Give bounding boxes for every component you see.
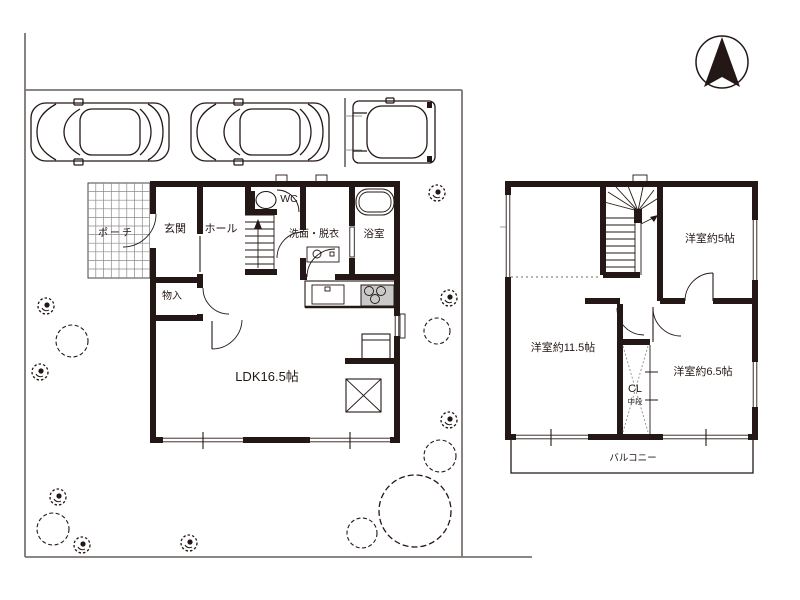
hall-label: ホール: [205, 222, 238, 235]
car-icon-1: [31, 99, 169, 165]
bath-label: 浴室: [364, 227, 385, 240]
car-icon-3: [353, 98, 435, 163]
toilet-icon: [246, 191, 276, 209]
tree-icon: [347, 518, 377, 548]
porch-label: ポーチ: [98, 227, 134, 239]
floor2-plan: [500, 175, 758, 473]
floorplan-drawing: ポーチ 玄関 ホール WC 洗面・脱衣 浴室 物入 LDK16.5帖 洋室約5帖…: [0, 0, 800, 600]
shrub-icon: [50, 489, 66, 505]
storage-label: 物入: [162, 289, 182, 302]
room65-label: 洋室約6.5帖: [673, 364, 732, 378]
entrance-label: 玄関: [164, 221, 186, 235]
shrub-icon: [429, 185, 445, 201]
stove-icon: [361, 285, 394, 306]
shrub-icon: [74, 537, 90, 553]
shrub-icon: [441, 412, 457, 428]
stairs-icon: [245, 212, 274, 272]
ldk-label: LDK16.5帖: [235, 369, 299, 384]
closet-note-label: 中段: [628, 396, 643, 406]
tree-icon: [37, 513, 69, 545]
north-compass-icon: [696, 36, 748, 88]
shrub-icon: [441, 290, 457, 306]
shrub-icon: [32, 364, 48, 380]
floorplan-canvas: ポーチ 玄関 ホール WC 洗面・脱衣 浴室 物入 LDK16.5帖 洋室約5帖…: [0, 0, 800, 600]
closet-label: CL: [628, 383, 642, 395]
wc-label: WC: [280, 193, 298, 205]
sink-icon: [312, 285, 344, 304]
shrub-icon: [38, 298, 54, 314]
tree-icon: [56, 325, 88, 357]
bathtub-icon: [356, 189, 394, 215]
car-icon-2: [191, 99, 329, 165]
door-arc: [123, 190, 354, 349]
tree-icon: [424, 440, 456, 472]
balcony-label: バルコニー: [609, 453, 656, 464]
floor-hatch-icon: [346, 379, 381, 412]
room5-label: 洋室約5帖: [685, 231, 735, 245]
shrub-icon: [181, 535, 197, 551]
room115-label: 洋室約11.5帖: [531, 340, 596, 354]
washroom-label: 洗面・脱衣: [289, 227, 339, 240]
tree-icon: [379, 475, 451, 547]
refrigerator-icon: [362, 334, 390, 359]
floor1-plan: [123, 175, 405, 449]
stairs-icon: [603, 186, 660, 275]
tree-icon: [424, 318, 450, 344]
door-arc: [617, 273, 713, 342]
